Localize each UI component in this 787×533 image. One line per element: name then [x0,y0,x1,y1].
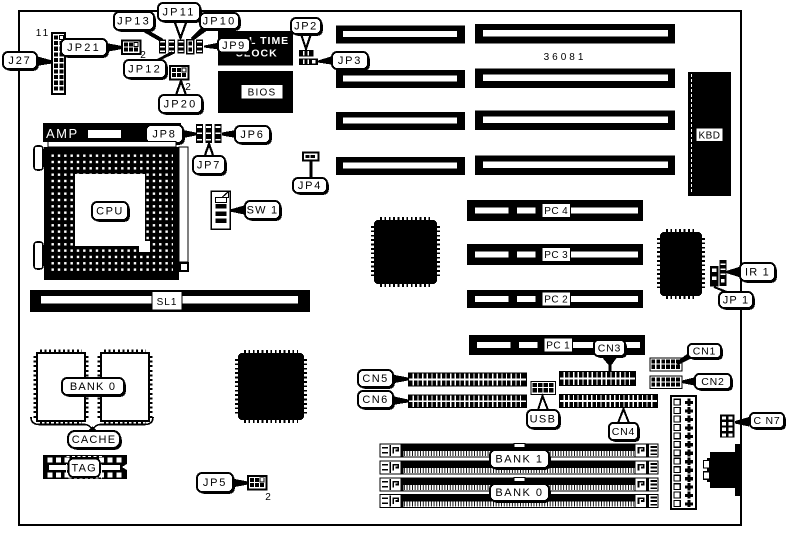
svg-text:JP21: JP21 [67,42,101,54]
svg-text:JP6: JP6 [240,129,264,141]
svg-text:BIOS: BIOS [248,88,277,99]
svg-text:PC 1: PC 1 [546,341,570,352]
svg-text:2: 2 [185,82,191,93]
svg-text:JP20: JP20 [164,99,198,111]
svg-text:AMP: AMP [46,126,79,141]
svg-text:JP12: JP12 [128,64,162,76]
svg-text:JP2: JP2 [294,21,318,33]
svg-text:CN4: CN4 [612,426,635,438]
svg-text:USB: USB [530,414,557,426]
svg-text:PC 3: PC 3 [544,250,568,261]
svg-text:CN5: CN5 [362,373,388,385]
svg-text:CPU: CPU [96,206,124,218]
svg-text:JP11: JP11 [162,7,195,19]
svg-text:CN6: CN6 [362,394,388,406]
svg-text:CN1: CN1 [693,346,716,358]
svg-text:PC 4: PC 4 [544,206,568,217]
svg-text:BANK 0: BANK 0 [495,487,543,499]
svg-text:11: 11 [36,28,50,39]
svg-text:JP 1: JP 1 [723,295,750,307]
svg-text:SL1: SL1 [157,297,178,308]
svg-text:JP9: JP9 [222,40,246,52]
svg-text:KBD: KBD [698,131,720,142]
svg-text:SW 1: SW 1 [247,205,279,217]
svg-text:JP13: JP13 [117,16,151,28]
svg-text:TAG: TAG [71,463,96,475]
svg-text:36081: 36081 [544,52,587,63]
svg-text:BANK 1: BANK 1 [495,454,543,466]
svg-text:CN2: CN2 [701,376,724,388]
svg-text:IR 1: IR 1 [745,267,770,279]
svg-text:C N7: C N7 [753,415,780,427]
svg-text:2: 2 [265,492,271,503]
svg-text:JP8: JP8 [152,129,176,141]
svg-text:JP7: JP7 [197,160,221,172]
svg-text:JP3: JP3 [338,55,362,67]
svg-text:JP10: JP10 [203,16,237,28]
svg-text:CN3: CN3 [598,343,621,355]
svg-text:J27: J27 [8,55,31,67]
svg-text:PC 2: PC 2 [544,295,568,306]
svg-text:JP5: JP5 [203,477,227,489]
svg-text:JP4: JP4 [298,180,322,192]
svg-text:BANK 0: BANK 0 [70,381,116,393]
svg-text:CACHE: CACHE [72,434,117,446]
